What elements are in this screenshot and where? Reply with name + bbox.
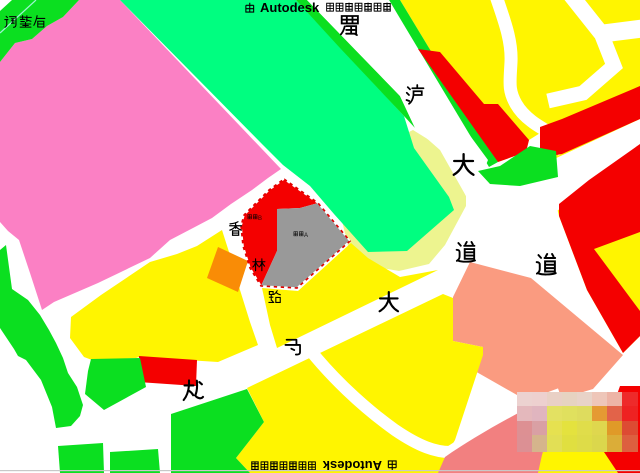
svg-text:B: B xyxy=(258,216,262,222)
svg-text:Autodesk: Autodesk xyxy=(260,0,320,15)
svg-text:A: A xyxy=(304,233,308,239)
